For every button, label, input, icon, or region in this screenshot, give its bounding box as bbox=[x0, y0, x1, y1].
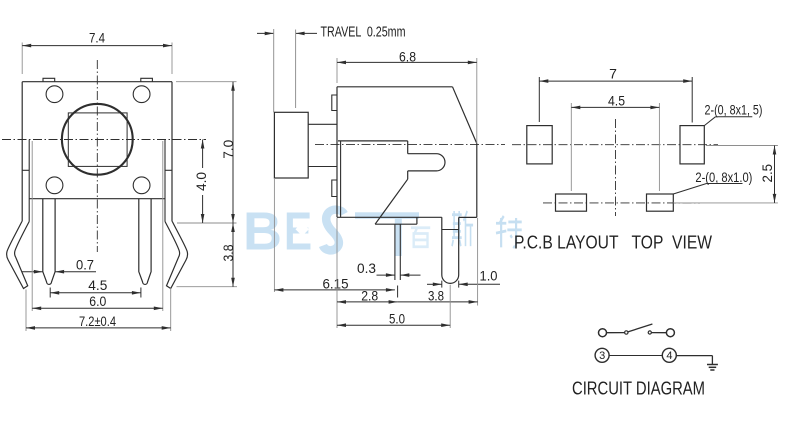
svg-text:4: 4 bbox=[666, 350, 672, 362]
svg-text:2.5: 2.5 bbox=[759, 164, 775, 183]
svg-text:6.0: 6.0 bbox=[89, 293, 106, 309]
svg-text:B: B bbox=[243, 202, 282, 262]
svg-text:0.7: 0.7 bbox=[76, 256, 94, 272]
svg-text:2-(0, 8x1, 5): 2-(0, 8x1, 5) bbox=[705, 103, 763, 118]
svg-text:7: 7 bbox=[609, 66, 617, 82]
svg-text:CIRCUIT DIAGRAM: CIRCUIT DIAGRAM bbox=[572, 377, 705, 398]
svg-text:7.0: 7.0 bbox=[220, 140, 236, 159]
svg-text:4.0: 4.0 bbox=[193, 172, 209, 191]
svg-text:7.4: 7.4 bbox=[89, 29, 105, 45]
svg-text:P.C.B LAYOUT TOP VIEW: P.C.B LAYOUT TOP VIEW bbox=[514, 232, 712, 252]
svg-text:4.5: 4.5 bbox=[88, 277, 107, 293]
svg-text:7.2±0.4: 7.2±0.4 bbox=[79, 313, 116, 329]
svg-text:6.8: 6.8 bbox=[399, 48, 416, 64]
svg-text:2.8: 2.8 bbox=[361, 288, 378, 304]
svg-text:0.3: 0.3 bbox=[357, 260, 376, 276]
svg-text:4.5: 4.5 bbox=[608, 93, 625, 109]
svg-text:3.8: 3.8 bbox=[220, 244, 236, 261]
svg-text:2-(0, 8x1.0): 2-(0, 8x1.0) bbox=[695, 170, 752, 185]
svg-text:3: 3 bbox=[599, 350, 605, 362]
svg-text:5.0: 5.0 bbox=[389, 310, 405, 326]
svg-text:6.15: 6.15 bbox=[323, 275, 349, 291]
svg-text:TRAVEL 0.25mm: TRAVEL 0.25mm bbox=[321, 24, 406, 40]
svg-text:3.8: 3.8 bbox=[428, 288, 444, 304]
svg-text:1.0: 1.0 bbox=[480, 267, 498, 283]
